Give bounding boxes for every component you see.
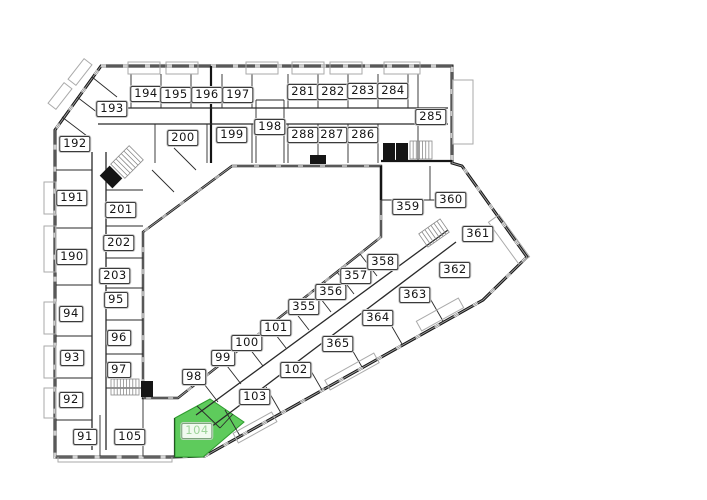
unit-label-281[interactable]: 281 [287,84,318,100]
unit-label-192[interactable]: 192 [59,136,90,152]
unit-label-283[interactable]: 283 [347,83,378,99]
unit-label-93[interactable]: 93 [60,350,84,366]
unit-label-359[interactable]: 359 [392,199,423,215]
unit-label-355[interactable]: 355 [288,299,319,315]
unit-label-97[interactable]: 97 [107,362,131,378]
unit-label-357[interactable]: 357 [340,268,371,284]
unit-label-190[interactable]: 190 [56,249,87,265]
floor-plan-page: 9192939495969798991001011021031041051901… [0,0,707,500]
unit-label-287[interactable]: 287 [316,127,347,143]
unit-label-105[interactable]: 105 [114,429,145,445]
unit-label-363[interactable]: 363 [399,287,430,303]
unit-label-98[interactable]: 98 [182,369,206,385]
unit-label-103[interactable]: 103 [239,389,270,405]
unit-label-358[interactable]: 358 [367,254,398,270]
unit-label-203[interactable]: 203 [99,268,130,284]
unit-label-282[interactable]: 282 [317,84,348,100]
unit-label-193[interactable]: 193 [96,101,127,117]
unit-label-91[interactable]: 91 [73,429,97,445]
unit-label-362[interactable]: 362 [439,262,470,278]
unit-label-194[interactable]: 194 [130,86,161,102]
unit-label-99[interactable]: 99 [211,350,235,366]
unit-label-199[interactable]: 199 [216,127,247,143]
unit-label-94[interactable]: 94 [59,306,83,322]
unit-label-288[interactable]: 288 [287,127,318,143]
unit-label-191[interactable]: 191 [56,190,87,206]
unit-labels-layer: 9192939495969798991001011021031041051901… [0,0,707,500]
unit-label-360[interactable]: 360 [435,192,466,208]
unit-label-200[interactable]: 200 [167,130,198,146]
unit-label-356[interactable]: 356 [315,284,346,300]
unit-label-361[interactable]: 361 [462,226,493,242]
unit-label-364[interactable]: 364 [362,310,393,326]
unit-label-100[interactable]: 100 [231,335,262,351]
unit-label-96[interactable]: 96 [107,330,131,346]
unit-label-92[interactable]: 92 [59,392,83,408]
unit-label-201[interactable]: 201 [105,202,136,218]
unit-label-365[interactable]: 365 [322,336,353,352]
unit-label-101[interactable]: 101 [260,320,291,336]
unit-label-104[interactable]: 104 [181,423,212,439]
unit-label-285[interactable]: 285 [415,109,446,125]
unit-label-202[interactable]: 202 [103,235,134,251]
unit-label-102[interactable]: 102 [280,362,311,378]
unit-label-195[interactable]: 195 [160,87,191,103]
unit-label-286[interactable]: 286 [347,127,378,143]
unit-label-284[interactable]: 284 [377,83,408,99]
unit-label-198[interactable]: 198 [254,119,285,135]
unit-label-95[interactable]: 95 [104,292,128,308]
unit-label-197[interactable]: 197 [222,87,253,103]
unit-label-196[interactable]: 196 [191,87,222,103]
